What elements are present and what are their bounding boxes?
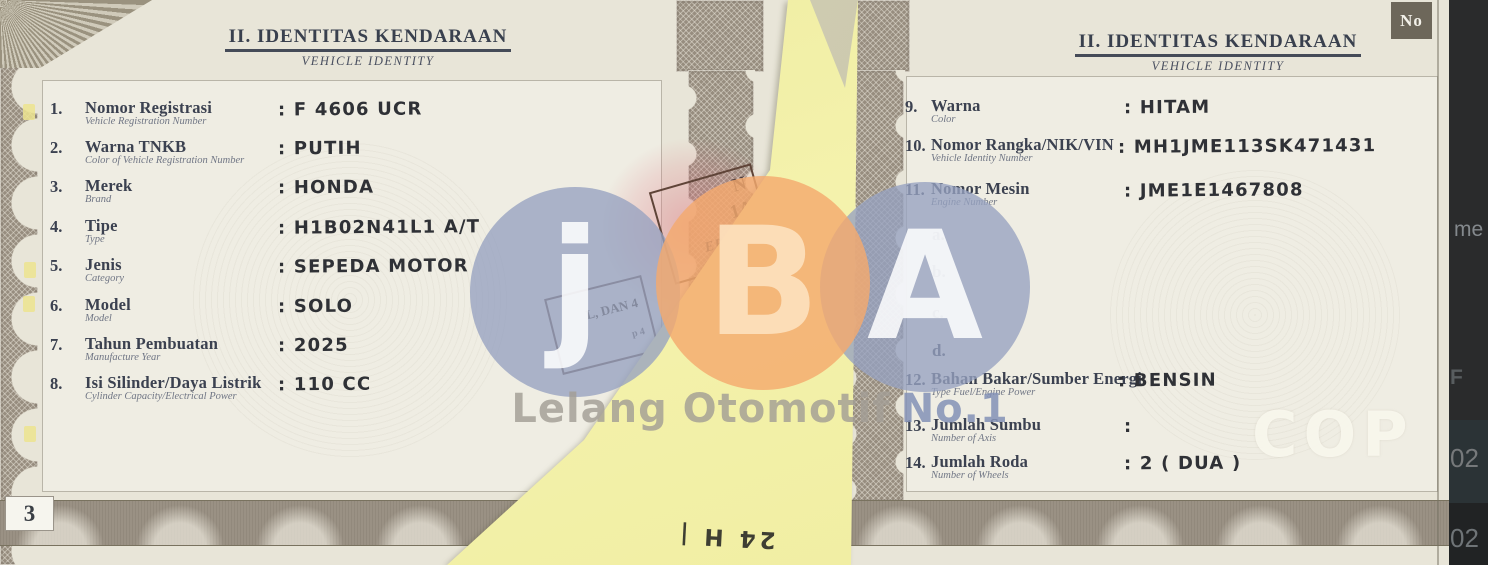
viewer-side-panel: me F 02 02: [1449, 0, 1488, 565]
clipped-text-fragment: 02: [1450, 443, 1479, 474]
yellow-paper-slip: 24 H |: [0, 0, 1488, 565]
yellow-paper-slip-wrap: 24 H |: [0, 0, 1488, 565]
side-panel-row[interactable]: [1449, 0, 1488, 420]
handwritten-mark: 24 H |: [675, 521, 776, 552]
clipped-text-fragment: F: [1450, 366, 1463, 390]
paper-fold-corner: [0, 0, 1488, 565]
clipped-text-fragment: me: [1454, 218, 1483, 242]
scanned-vehicle-document: COP II. IDENTITAS KENDARAAN VEHICLE IDEN…: [0, 0, 1488, 565]
clipped-text-fragment: 02: [1450, 523, 1479, 554]
